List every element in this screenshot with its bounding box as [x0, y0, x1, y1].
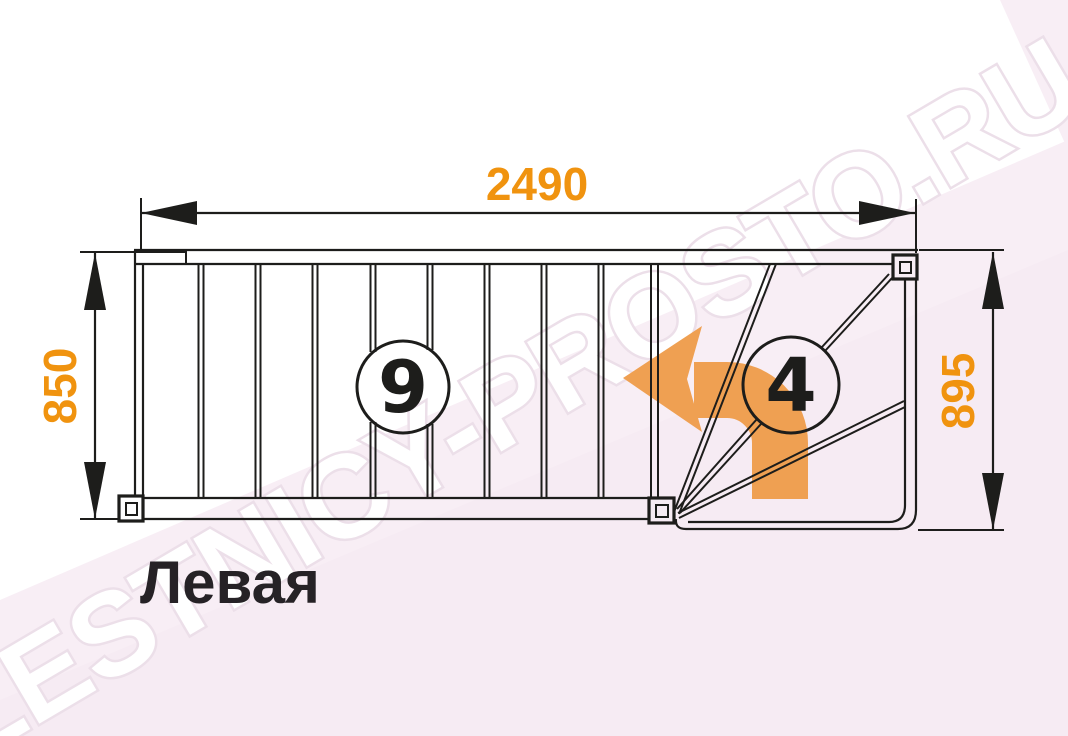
stair-plan-page: LESTNICY-PROSTO.RU [0, 0, 1068, 736]
dim-top-label: 2490 [486, 158, 588, 210]
dim-left-arrow-bottom [84, 462, 106, 519]
winder-count-number: 4 [765, 343, 817, 429]
plan-title: Левая [140, 549, 320, 616]
dim-left-label: 850 [34, 348, 86, 425]
dim-top-arrow-left [141, 201, 197, 225]
newel-post-bottom-left [119, 496, 143, 521]
dim-right-label: 895 [932, 353, 984, 430]
staircase-plan-drawing: LESTNICY-PROSTO.RU [0, 0, 1068, 736]
dim-left-arrow-top [84, 253, 106, 310]
newel-post-bottom-left-inner [126, 503, 137, 515]
dimension-left: 850 [34, 252, 186, 519]
straight-count-number: 9 [378, 345, 428, 429]
